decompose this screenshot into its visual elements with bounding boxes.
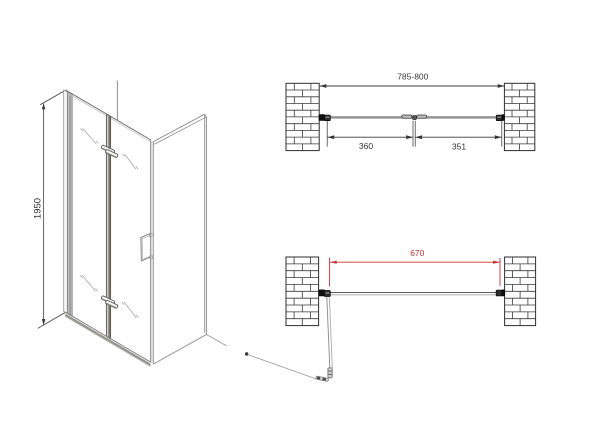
svg-text:1950: 1950 <box>33 198 44 219</box>
svg-text:670: 670 <box>410 248 424 258</box>
svg-text:360: 360 <box>359 141 373 151</box>
svg-text:351: 351 <box>452 142 466 152</box>
svg-text:785-800: 785-800 <box>397 72 428 82</box>
